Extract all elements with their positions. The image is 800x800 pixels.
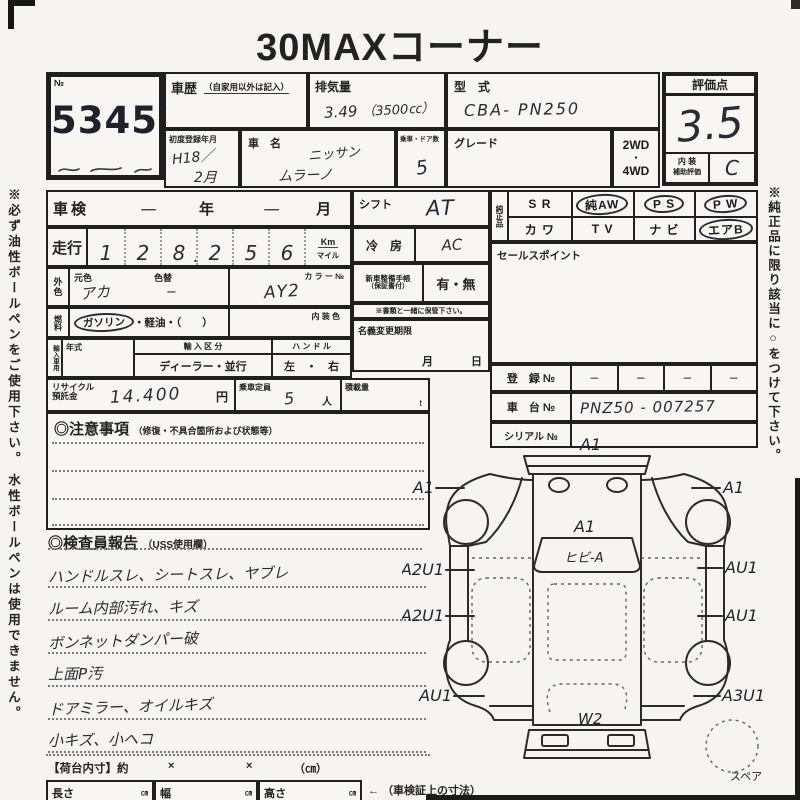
left-margin-note: ※必ず油性ボールペンをご使用下さい。 水性ボールペンは使用できません。 [4,188,23,748]
damage-label-windshield: ヒビ-A [564,551,604,566]
import-type-label: 輸 入 区 分 [135,340,271,355]
fuel-row: 燃料 ガソリン ・軽油・（ ） 内 装 色 [46,307,352,338]
shaken-month-unit: 月 [316,198,331,219]
color-no-label: カ ラ ー № [304,271,344,282]
serial-no-label: シリアル № [492,424,572,446]
auction-sheet-scan: 30MAXコーナー ※必ず油性ボールペンをご使用下さい。 水性ボールペンは使用で… [0,0,800,800]
right-front-wheel [686,500,730,544]
ownership-day-unit: 日 [471,353,482,369]
length-label: 長さ [52,785,74,800]
keep-note: ※書類と一緒に保管下さい。 [376,306,467,316]
recycle-label-2: 預託金 [52,392,94,401]
fuel-cell: ガソリン ・軽油・（ ） [70,309,230,336]
displacement-label: 排気量 [315,78,351,95]
exterior-color-label: 外色 [48,269,70,305]
cautions-box: ◎注意事項 （修復・不具合箇所および状態等） [46,412,430,530]
score-box: 評価点 3.5 内 装 補助評価 C [662,72,758,186]
width-unit: ㎝ [245,788,252,798]
interior-grade-label: 内 装 補助評価 [666,154,710,182]
service-book-options: 有・無 [424,265,488,301]
windshield [534,538,640,572]
model-code-box: 型 式 CBA- PN250 [446,72,660,129]
inspector-heading-underline [48,540,422,550]
interior-color-cell: 内 装 色 [230,309,350,336]
scan-edge-right [795,478,800,800]
exterior-color-row: 外色 元色 アカ 色替 − カ ラ ー № AY2 [46,267,352,307]
shaken-year-value: 一 [139,197,155,221]
right-rear-wheel [686,641,730,685]
tail-light-left [542,735,568,746]
equipment-item-leather: カ ワ [509,216,571,240]
ownership-change-label: 名義変更期限 [358,324,412,337]
odometer-digit: 8 . [160,229,196,265]
first-registration-label: 初度登録年月 [169,134,217,145]
displacement-value: 3.49 （3500㏄） [324,97,435,122]
drive-2wd: 2WD [623,138,650,153]
doors-box: 乗車・ドア数 5 [396,129,446,188]
doors-value: 5 [415,156,430,179]
spare-tire-dashed [706,720,758,772]
serial-no-value [572,424,756,446]
damage-label-right-door-upper: AU1 [724,558,758,577]
color-no-cell: カ ラ ー № AY2 [230,269,350,305]
shaken-month-value: 一 [262,197,278,221]
sales-point-label: セールスポイント [497,248,581,263]
color-no-value: AY2 [263,281,300,303]
equipment-item-navi: ナ ビ [633,216,695,240]
auction-number: 53457 [51,99,159,142]
equipment-item-pw: P W [694,192,756,216]
chassis-no-value: PNZ50 - 007257 [572,392,756,421]
registration-no-label: 登 録 № [492,366,572,390]
original-color-value: アカ [79,280,111,304]
handwritten-scribble [55,163,155,175]
registration-no-cell: − [663,366,710,390]
handle-cell: ハ ン ド ル 左 ・ 右 [273,340,350,376]
shift-value: AT [426,195,456,220]
grade-label: グレード [454,135,498,151]
import-year-label: 年式 [66,342,82,353]
bed-dimensions-x1: × [168,760,174,772]
original-color-cell: 元色 アカ 色替 − [70,269,230,305]
right-front-fender [684,474,728,546]
width-label: 幅 [160,785,171,800]
ownership-month-unit: 月 [422,353,433,369]
ac-value: AC [415,227,489,263]
model-code-label: 型 式 [454,78,490,95]
damage-label-right-fender: A1 [722,478,744,497]
inspector-note-line: ボンネットダンパー破 [48,622,426,654]
car-model-value: ムラーノ [278,164,333,186]
odometer-digit: 1 [88,229,124,265]
capacity-label: 乗車定員 [239,382,271,393]
car-damage-diagram: A1 A1 A1 A1 ヒビ-A A2U1 A2U1 AU1 AU1 AU1 A… [402,428,782,788]
scan-corner-mark-vertical [8,0,14,29]
first-registration-month: 2月 [194,167,217,187]
headlight-right [607,478,627,492]
inspector-note-line: ハンドルスレ、シートスレ、ヤブレ [48,556,426,588]
bed-dimensions-unit: （㎝） [294,760,327,776]
drive-type-box: 2WD ・ 4WD [612,129,660,188]
rear-bumper [524,730,650,758]
capacity-unit: 人 [322,393,332,408]
repaint-value: − [166,285,177,300]
fuel-label: 燃料 [48,309,70,336]
footer-dotted-separator [46,754,430,756]
ac-label: 冷 房 [354,229,416,261]
damage-label-hood: A1 [573,517,595,536]
caution-line [52,442,424,444]
length-unit: ㎝ [141,788,148,798]
import-row: 輸入車用 年式 輸 入 区 分 ディーラー・並行 ハ ン ド ル 左 ・ 右 [46,338,352,378]
left-front-fender [446,474,490,546]
front-bumper [524,456,650,474]
equipment-item-aw: 純AW [571,192,633,216]
odometer-digit: 2 [124,229,160,265]
car-body-top-view [533,474,641,725]
doors-label: 乗車・ドア数 [400,133,439,143]
registration-no-cell: − [572,366,617,390]
keep-note-box: ※書類と一緒に保管下さい。 [352,303,490,319]
chassis-no-row: 車 台 № PNZ50 - 007257 [490,392,758,422]
car-name-box: 車 名 ニッサン ムラーノ [240,129,396,188]
service-book-box: 新車整備手帳 （保証書付） 有・無 [352,263,490,303]
scan-edge-bottom [426,795,800,800]
cautions-subtitle: （修復・不具合箇所および状態等） [133,426,277,436]
left-front-wheel [444,500,488,544]
equipment-label: 純正品 [492,192,509,240]
rear-window-dashed [547,684,626,712]
left-door-outline-dashed [472,578,530,662]
fuel-other-options: ・軽油・（ ） [134,315,213,330]
left-side-panel [450,546,468,640]
interior-color-label: 内 装 色 [312,311,340,322]
inspector-note-line: ルーム内部汚れ、キズ [48,589,426,621]
height-label: 高さ [264,785,286,800]
height-unit: ㎝ [349,788,356,798]
serial-no-row: シリアル № [490,422,758,448]
equipment-box: 純正品 S R 純AW P S P W カ ワ T V ナ ビ エアB [490,190,758,242]
service-book-label: 新車整備手帳 （保証書付） [354,265,424,301]
equipment-item-sr: S R [509,192,571,216]
capacity-value: 5 [283,389,295,409]
bed-dimensions-x2: × [246,760,252,772]
right-margin-note: ※純正品に限り該当に○をつけて下さい。 [764,186,783,494]
spare-tire-label: スペア [730,770,762,783]
ac-box: 冷 房 AC [352,227,490,263]
equipment-item-airbag: エアB [694,216,756,240]
inspector-note-line: ドアミラー、オイルキズ [48,688,426,720]
recycle-value: 14.400 [110,384,182,408]
vehicle-history-label: 車歴 [171,78,197,97]
import-type-options: ディーラー・並行 [135,355,271,374]
shaken-row: 車検 一 年 一 月 [46,190,352,227]
auction-no-label: № [54,78,64,88]
inspector-note-line: 上面P汚 [48,655,426,687]
import-year-cell: 年式 [63,340,135,376]
vehicle-history-note: （自家用以外は記入） [204,81,289,94]
damage-label-right-rear-quarter: A3U1 [721,686,765,705]
equipment-item-tv: T V [571,216,633,240]
odometer-digit: 5 [232,229,268,265]
fuel-gasoline-circled: ガソリン [74,312,135,333]
load-label: 積載量 [345,382,369,393]
drive-4wd: 4WD [623,164,650,179]
damage-label-tailgate: W2 [578,710,602,728]
length-cell: 長さ ㎝ [46,780,154,800]
bed-dimensions-label: 【荷台内寸】約 [48,760,129,776]
repaint-label: 色替 [154,271,172,284]
odometer-label: 走行 [48,229,88,265]
shaken-year-unit: 年 [199,198,214,219]
registration-no-row: 登 録 № − − − − [490,364,758,392]
score-value: 3.5 [664,92,757,155]
equipment-item-ps: P S [633,192,695,216]
height-cell: 高さ ㎝ [258,780,362,800]
odometer-unit: Km マイル [304,229,350,265]
tail-light-right [608,735,634,746]
inspector-note-line: 小キズ、小ヘコ [48,721,426,753]
odometer-digit: 2 [196,229,232,265]
interior-grade-value: C [710,154,754,182]
headlight-left [549,478,569,492]
displacement-box: 排気量 3.49 （3500㏄） [308,72,446,129]
scan-mark-top-right [791,0,800,9]
import-type-cell: 輸 入 区 分 ディーラー・並行 [135,340,273,376]
sales-point-box: セールスポイント [490,242,758,364]
caution-line [52,524,424,526]
model-code-value: CBA- PN250 [464,99,580,120]
recycle-cell: リサイクル 預託金 14.400 円 [48,380,236,410]
page-title: 30MAXコーナー [200,16,600,71]
odometer-row: 走行 1 2 8 . 2 5 6 Km マイル [46,227,352,267]
caution-line [52,498,424,500]
width-cell: 幅 ㎝ [154,780,258,800]
recycle-row: リサイクル 預託金 14.400 円 乗車定員 5 人 積載量 t [46,378,430,412]
left-rear-wheel [444,641,488,685]
left-arrow-icon: ← [368,785,379,797]
car-name-label: 車 名 [248,135,281,151]
roof-outline-dashed [548,584,626,660]
ownership-change-box: 名義変更期限 月 日 [352,319,490,372]
caution-line [52,470,424,472]
grade-box: グレード [446,129,612,188]
dimension-note: ← （車検証上の寸法） [368,782,481,798]
handle-options: 左 ・ 右 [273,355,350,374]
first-registration-box: 初度登録年月 H18／ 2月 [164,129,240,188]
drive-dot: ・ [631,153,640,164]
registration-no-cell: − [617,366,664,390]
shift-label: シフト [359,196,392,212]
recycle-unit: 円 [216,388,228,405]
odometer-digit: 6 [268,229,304,265]
left-rear-quarter [446,640,533,720]
import-label: 輸入車用 [48,340,63,376]
capacity-cell: 乗車定員 5 人 [236,380,342,410]
load-cell: 積載量 t [342,380,428,410]
chassis-no-label: 車 台 № [492,394,572,420]
shift-box: シフト AT [352,190,490,227]
shaken-label: 車検 [48,198,89,219]
vehicle-history-box: 車歴 （自家用以外は記入） [164,72,308,129]
cautions-title: ◎注意事項 [54,421,129,438]
handle-label: ハ ン ド ル [273,340,350,355]
right-door-outline-dashed [644,578,702,662]
auction-number-box: № 53457 [46,72,164,180]
damage-label-right-door-lower: AU1 [724,606,758,625]
registration-no-cell: − [710,366,757,390]
right-side-panel [706,546,724,640]
first-registration-year: H18／ [171,145,215,169]
car-maker-value: ニッサン [307,141,360,164]
right-rear-quarter [641,640,728,720]
load-unit: t [419,398,422,408]
